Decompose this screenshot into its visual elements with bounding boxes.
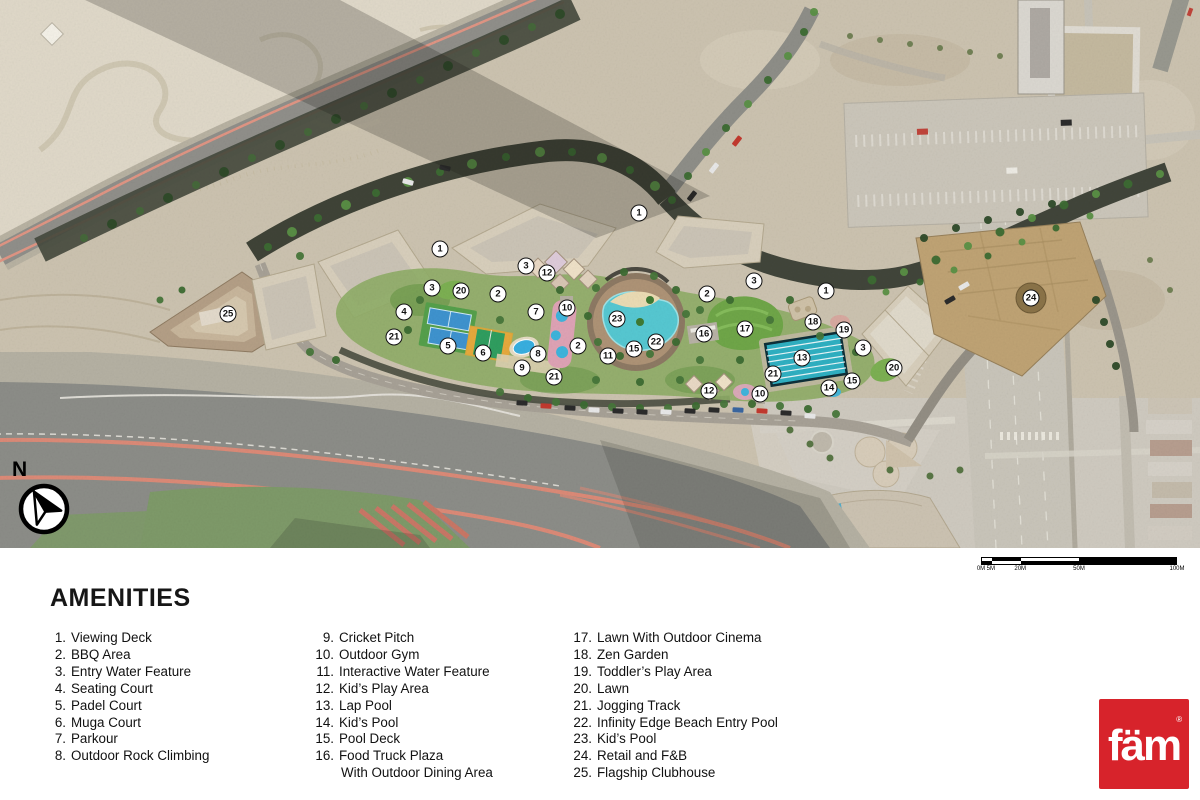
legend-item: 4.Seating Court <box>52 681 209 698</box>
legend-item-label: Lawn <box>597 681 629 698</box>
scale-label: 50M <box>1073 566 1085 572</box>
legend-column-3: 17.Lawn With Outdoor Cinema18.Zen Garden… <box>568 630 778 782</box>
plan-marker-8: 8 <box>530 346 547 363</box>
legend-item: 10.Outdoor Gym <box>310 647 493 664</box>
legend-item-number: 3. <box>52 664 71 681</box>
legend-item-label: Lawn With Outdoor Cinema <box>597 630 761 647</box>
legend-item-number: 11. <box>310 664 339 681</box>
scale-label: 20M <box>1014 566 1026 572</box>
legend-item-number: 21. <box>568 698 597 715</box>
legend-item: 1.Viewing Deck <box>52 630 209 647</box>
scale-bar-labels: 0M5M20M50M100M <box>981 565 1177 574</box>
legend-item-label: Entry Water Feature <box>71 664 191 681</box>
plan-marker-4: 4 <box>396 304 413 321</box>
legend-item-label: Food Truck Plaza <box>339 748 443 765</box>
legend-item-number: 8. <box>52 748 71 765</box>
scale-bar: 0M5M20M50M100M <box>981 557 1177 577</box>
legend-item-label: Viewing Deck <box>71 630 152 647</box>
legend-item-label: Cricket Pitch <box>339 630 414 647</box>
plan-marker-20: 20 <box>453 283 470 300</box>
legend-item: 8.Outdoor Rock Climbing <box>52 748 209 765</box>
plan-marker-3: 3 <box>518 258 535 275</box>
legend-item: 20.Lawn <box>568 681 778 698</box>
legend-item: 14.Kid’s Pool <box>310 715 493 732</box>
legend-item-label: Toddler’s Play Area <box>597 664 712 681</box>
legend-item: 19.Toddler’s Play Area <box>568 664 778 681</box>
legend-title: AMENITIES <box>50 584 191 613</box>
legend-item-number: 5. <box>52 698 71 715</box>
legend-item-label: Outdoor Rock Climbing <box>71 748 209 765</box>
legend-item-number: 23. <box>568 731 597 748</box>
legend-item-number: 18. <box>568 647 597 664</box>
plan-marker-14: 14 <box>821 380 838 397</box>
masterplan-map: 1112223333456789101011121213141515161718… <box>0 0 1200 548</box>
plan-marker-2: 2 <box>699 286 716 303</box>
plan-marker-5: 5 <box>440 338 457 355</box>
plan-marker-1: 1 <box>631 205 648 222</box>
site-plan-page: 1112223333456789101011121213141515161718… <box>0 0 1200 800</box>
legend-item-number: 6. <box>52 715 71 732</box>
legend-item-label: Kid’s Pool <box>339 715 398 732</box>
plan-marker-7: 7 <box>528 304 545 321</box>
plan-marker-3: 3 <box>855 340 872 357</box>
legend-item: 6.Muga Court <box>52 715 209 732</box>
fam-logo: fäm® <box>1099 699 1189 789</box>
legend-item-number: 15. <box>310 731 339 748</box>
plan-marker-2: 2 <box>570 338 587 355</box>
plan-marker-10: 10 <box>559 300 576 317</box>
legend-item-number: 20. <box>568 681 597 698</box>
legend-item-number: 22. <box>568 715 597 732</box>
legend-item-number: 7. <box>52 731 71 748</box>
plan-marker-3: 3 <box>424 280 441 297</box>
registered-mark: ® <box>1176 715 1182 724</box>
legend-item-label: Kid’s Pool <box>597 731 656 748</box>
plan-marker-18: 18 <box>805 314 822 331</box>
legend-item: 16.Food Truck Plaza <box>310 748 493 765</box>
scale-label: 0M <box>977 566 985 572</box>
legend-column-1: 1.Viewing Deck2.BBQ Area3.Entry Water Fe… <box>52 630 209 765</box>
legend-item-label: Kid’s Play Area <box>339 681 429 698</box>
scale-label: 100M <box>1169 566 1184 572</box>
legend-item: 25.Flagship Clubhouse <box>568 765 778 782</box>
legend-item: 15.Pool Deck <box>310 731 493 748</box>
legend-item: 7.Parkour <box>52 731 209 748</box>
legend-item-number: 13. <box>310 698 339 715</box>
plan-marker-24: 24 <box>1023 290 1040 307</box>
scale-bar-blocks <box>981 557 1177 565</box>
legend-item: 11.Interactive Water Feature <box>310 664 493 681</box>
plan-marker-23: 23 <box>609 311 626 328</box>
legend-item-number: 4. <box>52 681 71 698</box>
legend-item-number: 2. <box>52 647 71 664</box>
north-indicator: N <box>8 456 92 542</box>
legend-item: 17.Lawn With Outdoor Cinema <box>568 630 778 647</box>
legend-item-label: Pool Deck <box>339 731 400 748</box>
plan-marker-12: 12 <box>701 383 718 400</box>
legend-item-label: Seating Court <box>71 681 153 698</box>
legend-item: 24.Retail and F&B <box>568 748 778 765</box>
legend-item-number: 19. <box>568 664 597 681</box>
legend-item: 23.Kid’s Pool <box>568 731 778 748</box>
legend-item: 5.Padel Court <box>52 698 209 715</box>
legend-item-label: Parkour <box>71 731 118 748</box>
legend-item: 2.BBQ Area <box>52 647 209 664</box>
legend-item-number: 1. <box>52 630 71 647</box>
legend-item-number: 17. <box>568 630 597 647</box>
legend-item-label: BBQ Area <box>71 647 131 664</box>
legend-item-label: With Outdoor Dining Area <box>341 765 493 782</box>
plan-marker-19: 19 <box>836 322 853 339</box>
legend-item: 9.Cricket Pitch <box>310 630 493 647</box>
legend-item: 22.Infinity Edge Beach Entry Pool <box>568 715 778 732</box>
north-arrow-icon <box>8 456 92 542</box>
plan-marker-15: 15 <box>626 341 643 358</box>
legend-item-label: Muga Court <box>71 715 141 732</box>
plan-marker-20: 20 <box>886 360 903 377</box>
legend-item-label: Infinity Edge Beach Entry Pool <box>597 715 778 732</box>
plan-marker-11: 11 <box>600 348 617 365</box>
plan-marker-2: 2 <box>490 286 507 303</box>
legend-item-label: Padel Court <box>71 698 142 715</box>
legend-item-label: Outdoor Gym <box>339 647 419 664</box>
legend-item-label: Jogging Track <box>597 698 680 715</box>
fam-logo-text: fäm® <box>1108 721 1180 771</box>
legend-item-label: Interactive Water Feature <box>339 664 490 681</box>
plan-marker-22: 22 <box>648 334 665 351</box>
legend-item-label-wrap: With Outdoor Dining Area <box>310 765 493 782</box>
plan-marker-13: 13 <box>794 350 811 367</box>
plan-marker-9: 9 <box>514 360 531 377</box>
legend-item: 18.Zen Garden <box>568 647 778 664</box>
plan-marker-21: 21 <box>386 329 403 346</box>
legend-item: 12.Kid’s Play Area <box>310 681 493 698</box>
legend-item-number: 9. <box>310 630 339 647</box>
legend-item-label: Flagship Clubhouse <box>597 765 715 782</box>
legend-column-2: 9.Cricket Pitch10.Outdoor Gym11.Interact… <box>310 630 493 782</box>
legend-item: 13.Lap Pool <box>310 698 493 715</box>
legend-item-number: 16. <box>310 748 339 765</box>
plan-marker-21: 21 <box>765 366 782 383</box>
legend-item-number: 10. <box>310 647 339 664</box>
plan-marker-12: 12 <box>539 265 556 282</box>
legend-item-label: Zen Garden <box>597 647 668 664</box>
legend-item-number: 14. <box>310 715 339 732</box>
plan-marker-1: 1 <box>818 283 835 300</box>
plan-marker-10: 10 <box>752 386 769 403</box>
legend-item-label: Retail and F&B <box>597 748 687 765</box>
plan-marker-1: 1 <box>432 241 449 258</box>
plan-marker-16: 16 <box>696 326 713 343</box>
plan-marker-6: 6 <box>475 345 492 362</box>
legend-item-number: 25. <box>568 765 597 782</box>
plan-marker-21: 21 <box>546 369 563 386</box>
plan-marker-17: 17 <box>737 321 754 338</box>
legend-item-number: 12. <box>310 681 339 698</box>
legend-item-number: 24. <box>568 748 597 765</box>
legend-item-label: Lap Pool <box>339 698 392 715</box>
plan-marker-25: 25 <box>220 306 237 323</box>
plan-marker-3: 3 <box>746 273 763 290</box>
legend-item: 3.Entry Water Feature <box>52 664 209 681</box>
scale-label: 5M <box>987 566 995 572</box>
masterplan-artwork <box>0 0 1200 548</box>
plan-marker-15: 15 <box>844 373 861 390</box>
legend-item: 21.Jogging Track <box>568 698 778 715</box>
